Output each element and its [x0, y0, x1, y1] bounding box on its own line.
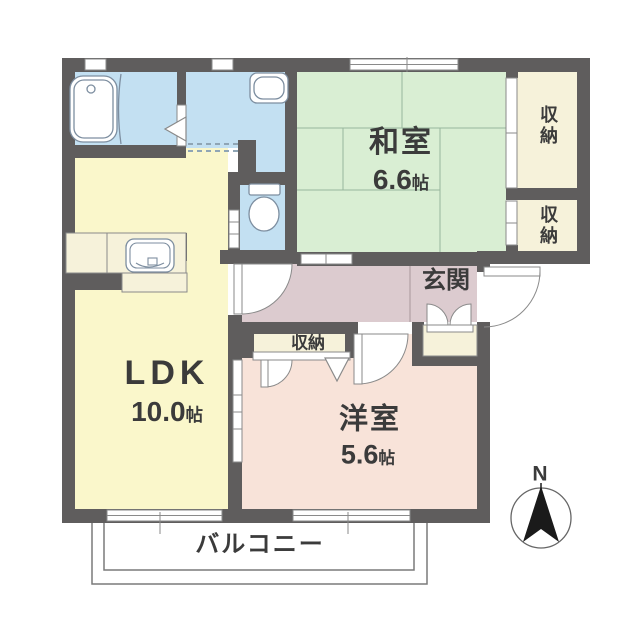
closet-upper-label: 収納: [539, 105, 557, 147]
closet-youshitsu-door-swing: [265, 360, 292, 387]
tatami-lines: [297, 72, 506, 252]
youshitsu-size: 5.6帖: [341, 442, 395, 469]
closet-youshitsu-door-leaf: [261, 360, 268, 387]
shoe-cabinet-door-left: [427, 304, 448, 325]
ldk-youshitsu-sliding-door: [233, 360, 242, 462]
washitsu-size: 6.6帖: [373, 166, 429, 194]
ldk-size: 10.0帖: [131, 398, 203, 426]
balcony-label: バルコニー: [195, 533, 325, 557]
entrance-door-leaf: [484, 267, 540, 276]
bath-deck-edge: [119, 74, 122, 144]
compass-north-label: N: [532, 464, 547, 485]
bathroom-folding-door-icon: [165, 117, 186, 141]
entrance-door-swing: [484, 271, 540, 327]
kitchen-faucet: [148, 258, 157, 265]
hall-door-leaf: [234, 264, 242, 314]
shoe-cabinet-door-right: [450, 304, 471, 325]
open-passage-dashes: [188, 144, 238, 151]
youshitsu-label: 洋室: [339, 406, 401, 435]
genkan-label: 玄関: [422, 269, 470, 293]
toilet-bowl: [249, 197, 279, 231]
youshitsu-door-leaf: [354, 334, 362, 384]
kitchen-base: [122, 273, 187, 292]
ldk-label: LDK: [125, 356, 210, 390]
floor-plan: 和室 6.6帖 LDK 10.0帖 洋室 5.6帖 玄関 収納 収納 収納 バル…: [0, 0, 640, 640]
closet-folding-door-icon: [325, 358, 349, 381]
toilet-tank: [249, 184, 280, 195]
compass: [511, 483, 571, 548]
youshitsu-door-swing: [358, 334, 408, 384]
hall-door-swing: [242, 264, 292, 314]
washitsu-label: 和室: [369, 128, 433, 158]
bathroom-window: [85, 59, 106, 70]
closet-lower-label: 収納: [539, 205, 557, 247]
washroom-window: [212, 59, 233, 70]
closet-youshitsu-label: 収納: [291, 335, 325, 352]
toilet-door: [229, 210, 239, 248]
